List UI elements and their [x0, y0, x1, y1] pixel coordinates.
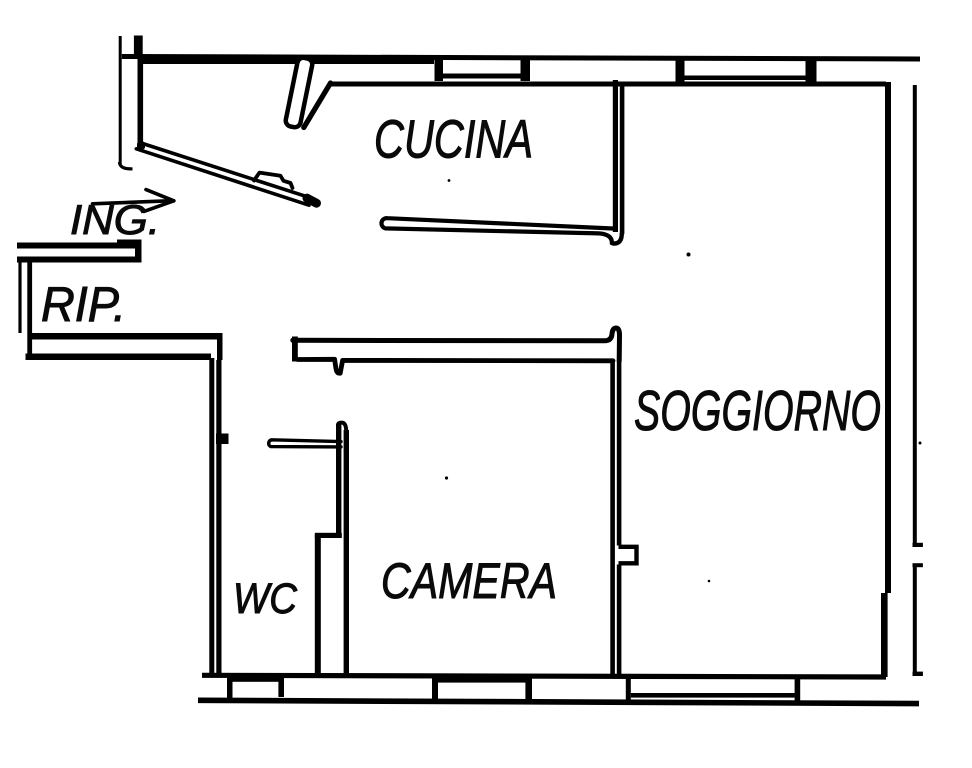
svg-text:CUCINA: CUCINA [374, 110, 533, 170]
svg-text:CAMERA: CAMERA [381, 553, 557, 609]
svg-text:SOGGIORNO: SOGGIORNO [634, 379, 881, 443]
svg-text:WC: WC [233, 575, 298, 623]
svg-text:ING.: ING. [70, 196, 160, 243]
svg-text:RIP.: RIP. [41, 278, 126, 332]
